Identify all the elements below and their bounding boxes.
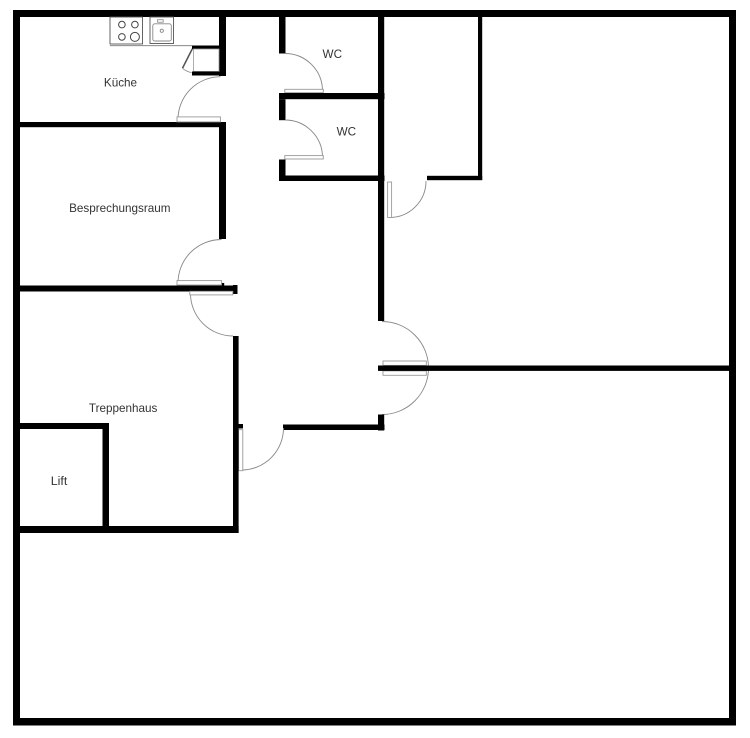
svg-text:WC: WC	[337, 126, 356, 139]
svg-text:WC: WC	[323, 48, 342, 61]
svg-text:Besprechungsraum: Besprechungsraum	[69, 202, 170, 215]
svg-text:Treppenhaus: Treppenhaus	[89, 402, 158, 415]
svg-text:Lift: Lift	[51, 474, 68, 488]
svg-text:Küche: Küche	[104, 77, 137, 90]
